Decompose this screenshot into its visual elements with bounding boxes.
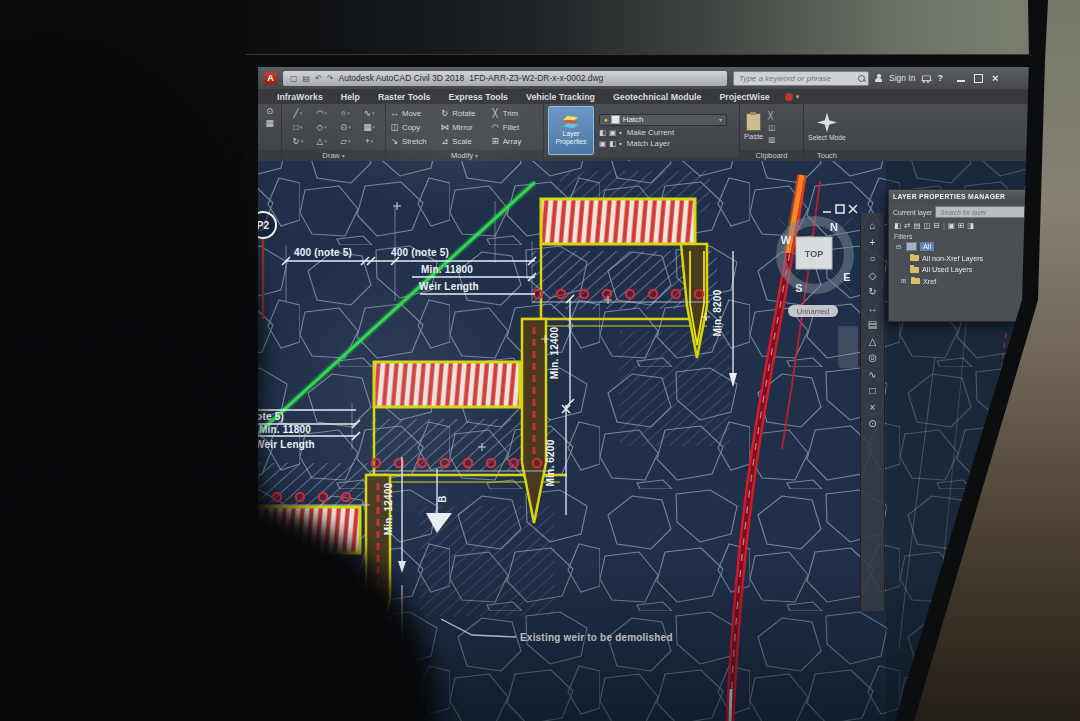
viewcube-east[interactable]: E — [843, 271, 850, 283]
paste-icon — [746, 113, 761, 131]
folder-icon — [910, 267, 919, 273]
layer-filter-tree: ⊟ All All non-Xref Layers All Used Layer… — [889, 241, 1039, 289]
select-mode-icon — [817, 112, 837, 132]
navigation-wheel-flyout[interactable] — [838, 326, 858, 368]
ribbon-panel-partial: ⊙ ▦ — [258, 104, 282, 161]
delete-layer-icon[interactable]: ⊟ — [934, 221, 940, 230]
tree-item-all[interactable]: ⊟ All — [896, 242, 1037, 251]
steering-wheel-icon[interactable]: ◎ — [868, 353, 877, 363]
viewcube-west[interactable]: W — [781, 234, 792, 246]
layer-states-icon[interactable]: ▤ — [913, 221, 920, 230]
screen-glare — [266, 240, 536, 560]
tree-item-non-xref[interactable]: All non-Xref Layers — [896, 254, 1037, 263]
close-button[interactable]: × — [992, 73, 998, 83]
tool-icon[interactable]: ⊙ — [266, 106, 273, 116]
help-search-input[interactable] — [737, 73, 855, 84]
addin-badge-icon[interactable] — [785, 93, 793, 101]
marker-p2[interactable]: P2 — [258, 220, 270, 231]
measure-icon[interactable]: △ — [869, 337, 877, 347]
sheet-icon[interactable]: ▤ — [868, 320, 877, 330]
dim-min-8200[interactable]: Min. 8200 — [712, 289, 723, 336]
tab-projectwise[interactable]: ProjectWise — [710, 92, 778, 102]
layer-search-field[interactable] — [935, 206, 1025, 218]
toolbar-divider: | — [943, 221, 945, 230]
tree-item-all-used[interactable]: All Used Layers — [896, 265, 1037, 274]
pan-icon[interactable]: ↔ — [868, 304, 878, 314]
folder-icon — [911, 278, 920, 284]
copy-clip-icon[interactable]: ◫ — [768, 123, 775, 132]
new-filter-icon[interactable]: ◧ — [894, 221, 901, 230]
all-layers-icon — [906, 242, 917, 251]
zoom-extents-icon[interactable]: ○ — [869, 254, 875, 264]
cut-icon[interactable]: ╳ — [768, 111, 775, 120]
zoom-in-icon[interactable]: + — [870, 238, 876, 248]
tree-item-xref[interactable]: ⊞ Xref — [896, 277, 1037, 286]
minimize-button[interactable] — [957, 80, 965, 82]
set-current-icon[interactable]: ⊞ — [958, 221, 964, 230]
viewport-icon[interactable]: □ — [869, 386, 875, 396]
dim-min-12400-upper[interactable]: Min. 12400 — [549, 326, 560, 379]
tool-icon[interactable]: ▦ — [265, 118, 273, 128]
select-mode-button[interactable]: Select Mode — [808, 112, 846, 141]
sign-in-button[interactable]: Sign In — [889, 73, 915, 83]
ribbon-panel-touch: Select Mode Touch — [804, 104, 850, 161]
view-name-label[interactable]: Unnamed — [797, 307, 830, 316]
close-nav-icon[interactable]: × — [870, 403, 876, 413]
search-icon[interactable] — [858, 75, 865, 82]
rotate-view-icon[interactable]: ↻ — [868, 287, 876, 297]
folder-icon — [910, 255, 919, 261]
restore-button[interactable] — [974, 74, 983, 83]
new-group-icon[interactable]: ⇄ — [904, 221, 910, 230]
chevron-down-icon[interactable]: ▾ — [796, 93, 800, 101]
navigation-bar: ⌂ + ○ ◇ ↻ ↔ ▤ △ ◎ ∿ □ × ⊙ — [860, 213, 885, 611]
app-store-cart-icon[interactable] — [921, 74, 931, 82]
help-search-field[interactable] — [733, 71, 869, 86]
orbit-icon[interactable]: ◇ — [869, 271, 877, 281]
match-properties-icon[interactable]: ▥ — [768, 135, 775, 144]
clipboard-panel-label: Clipboard — [740, 150, 803, 161]
photo-scene: A ▢ ▤ ↶ ↷ Autodesk AutoCAD Civil 3D 2018… — [0, 0, 1080, 721]
palette-titlebar[interactable]: LAYER PROPERTIES MANAGER — [889, 190, 1039, 203]
autocad-logo-icon[interactable]: A — [264, 72, 277, 85]
paste-button[interactable]: Paste — [744, 113, 763, 141]
current-layer-label: Current layer — [893, 209, 932, 216]
palette-title: LAYER PROPERTIES MANAGER — [893, 193, 1005, 200]
palette-toolbar: ◧ ⇄ ▤ ◫ ⊟ | ▣ ⊞ ◨ — [889, 219, 1039, 232]
target-icon[interactable]: ⊙ — [868, 419, 876, 429]
expand-icon[interactable]: ⊞ — [901, 277, 908, 285]
person-icon — [875, 74, 883, 82]
filters-label: Filters — [889, 232, 1039, 241]
new-layer-icon[interactable]: ◫ — [923, 221, 930, 230]
dim-min-6200-mid[interactable]: Min. 6200 — [545, 439, 556, 486]
refresh-icon[interactable]: ◨ — [967, 221, 974, 230]
new-icon[interactable]: ▢ — [290, 74, 298, 83]
viewcube-north[interactable]: N — [830, 221, 838, 233]
new-vp-layer-icon[interactable]: ▣ — [948, 221, 955, 230]
touch-panel-label: Touch — [804, 150, 850, 161]
home-icon[interactable]: ⌂ — [869, 221, 875, 231]
viewcube-top-label[interactable]: TOP — [805, 249, 823, 259]
collapse-icon[interactable]: ⊟ — [896, 243, 903, 251]
window-controls: × — [957, 73, 998, 83]
motion-icon[interactable]: ∿ — [868, 370, 876, 380]
chevron-down-icon: ▾ — [719, 116, 722, 123]
viewcube-south[interactable]: S — [795, 282, 802, 294]
layer-properties-manager: LAYER PROPERTIES MANAGER Current layer ◧… — [888, 189, 1040, 322]
layer-search-input[interactable] — [938, 208, 1022, 217]
screen-glare — [300, 80, 620, 210]
ribbon-panel-clipboard: Paste ╳ ◫ ▥ Clipboard — [740, 104, 804, 161]
help-icon[interactable]: ? — [937, 73, 943, 83]
